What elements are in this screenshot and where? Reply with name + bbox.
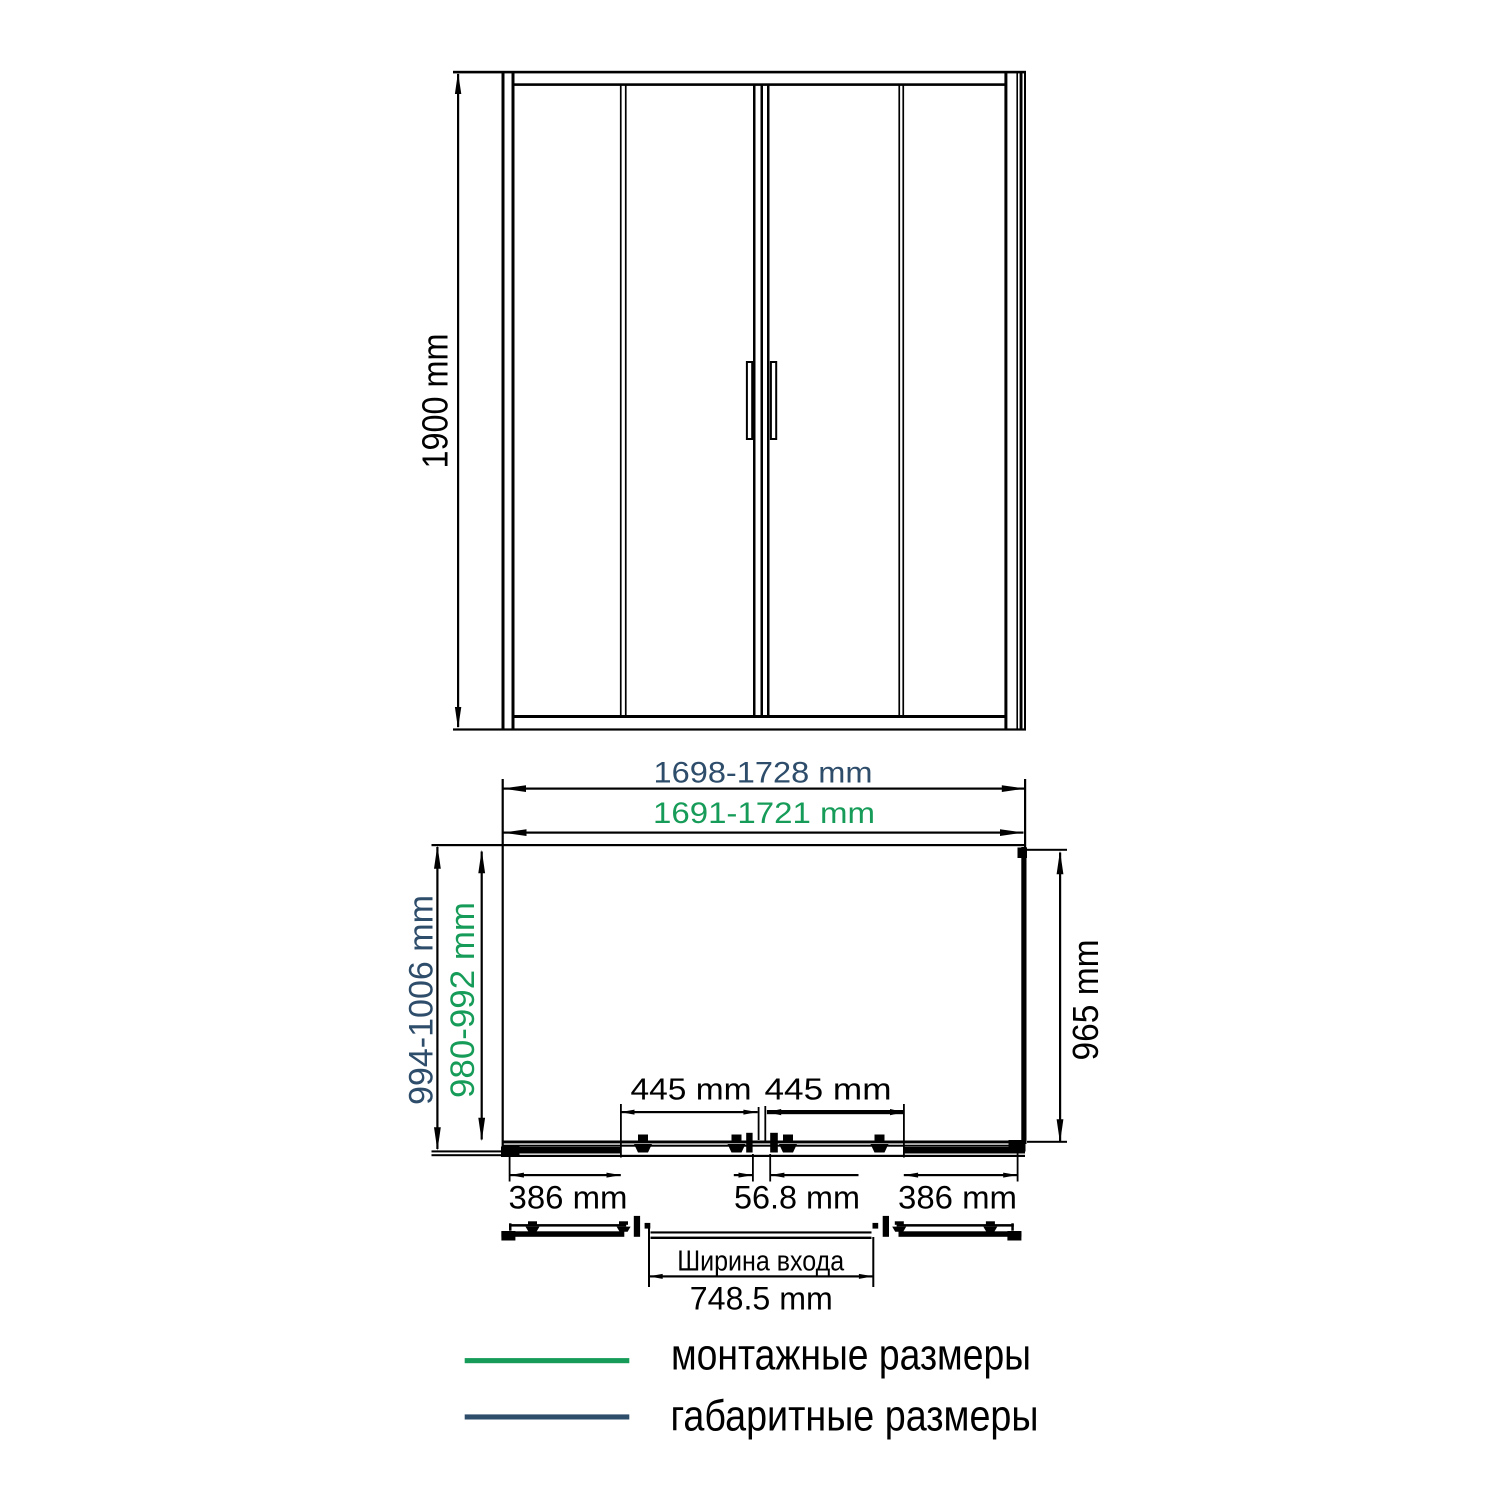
svg-text:445 mm: 445 mm [765, 1072, 892, 1107]
svg-text:габаритные размеры: габаритные размеры [671, 1391, 1039, 1440]
svg-text:994-1006 mm: 994-1006 mm [403, 895, 441, 1105]
svg-text:56.8 mm: 56.8 mm [734, 1180, 860, 1216]
svg-text:Ширина входа: Ширина входа [677, 1245, 845, 1277]
svg-text:965 mm: 965 mm [1065, 940, 1106, 1061]
svg-text:386 mm: 386 mm [509, 1180, 628, 1216]
svg-text:386 mm: 386 mm [898, 1180, 1017, 1216]
svg-text:980-992 mm: 980-992 mm [444, 902, 482, 1098]
svg-text:1698-1728 mm: 1698-1728 mm [654, 757, 873, 790]
svg-text:1691-1721 mm: 1691-1721 mm [653, 797, 875, 830]
svg-text:748.5 mm: 748.5 mm [690, 1281, 833, 1317]
svg-text:1900 mm: 1900 mm [415, 334, 456, 469]
svg-text:445 mm: 445 mm [631, 1072, 752, 1107]
svg-text:монтажные размеры: монтажные размеры [671, 1331, 1031, 1380]
